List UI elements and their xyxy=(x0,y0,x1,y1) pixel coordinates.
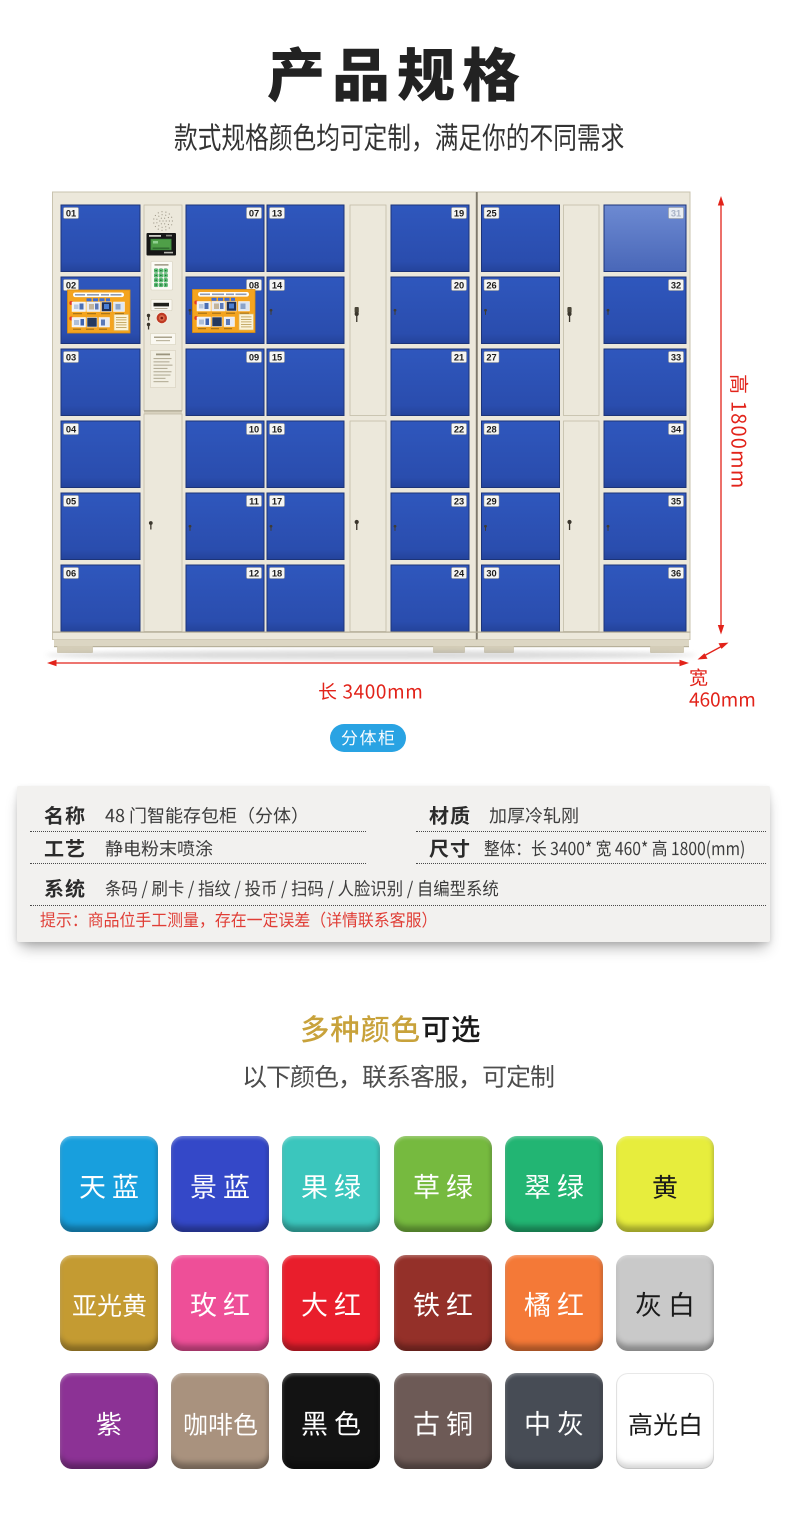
svg-text:05: 05 xyxy=(66,497,76,507)
svg-text:19: 19 xyxy=(454,209,464,219)
svg-text:10: 10 xyxy=(249,425,259,435)
svg-text:33: 33 xyxy=(671,353,681,363)
svg-text:17: 17 xyxy=(272,497,282,507)
svg-text:04: 04 xyxy=(66,425,77,435)
svg-text:09: 09 xyxy=(249,353,259,363)
svg-text:21: 21 xyxy=(454,353,464,363)
svg-text:18: 18 xyxy=(272,569,282,579)
svg-text:29: 29 xyxy=(486,497,496,507)
svg-text:20: 20 xyxy=(454,281,464,291)
svg-text:25: 25 xyxy=(486,209,496,219)
svg-text:01: 01 xyxy=(66,209,76,219)
svg-text:07: 07 xyxy=(249,209,259,219)
svg-text:22: 22 xyxy=(454,425,464,435)
svg-text:12: 12 xyxy=(249,569,259,579)
svg-text:02: 02 xyxy=(66,281,76,291)
svg-text:06: 06 xyxy=(66,569,76,579)
svg-text:28: 28 xyxy=(486,425,496,435)
svg-text:35: 35 xyxy=(671,497,681,507)
svg-text:34: 34 xyxy=(671,425,682,435)
svg-text:24: 24 xyxy=(454,569,465,579)
svg-text:15: 15 xyxy=(272,353,282,363)
svg-text:27: 27 xyxy=(486,353,496,363)
svg-text:30: 30 xyxy=(486,569,496,579)
svg-text:16: 16 xyxy=(272,425,282,435)
svg-text:23: 23 xyxy=(454,497,464,507)
svg-text:08: 08 xyxy=(249,281,259,291)
svg-text:03: 03 xyxy=(66,353,76,363)
svg-text:31: 31 xyxy=(671,209,681,219)
svg-text:32: 32 xyxy=(671,281,681,291)
svg-text:36: 36 xyxy=(671,569,681,579)
svg-text:11: 11 xyxy=(249,497,259,507)
svg-text:13: 13 xyxy=(272,209,282,219)
svg-text:14: 14 xyxy=(272,281,283,291)
svg-text:26: 26 xyxy=(486,281,496,291)
